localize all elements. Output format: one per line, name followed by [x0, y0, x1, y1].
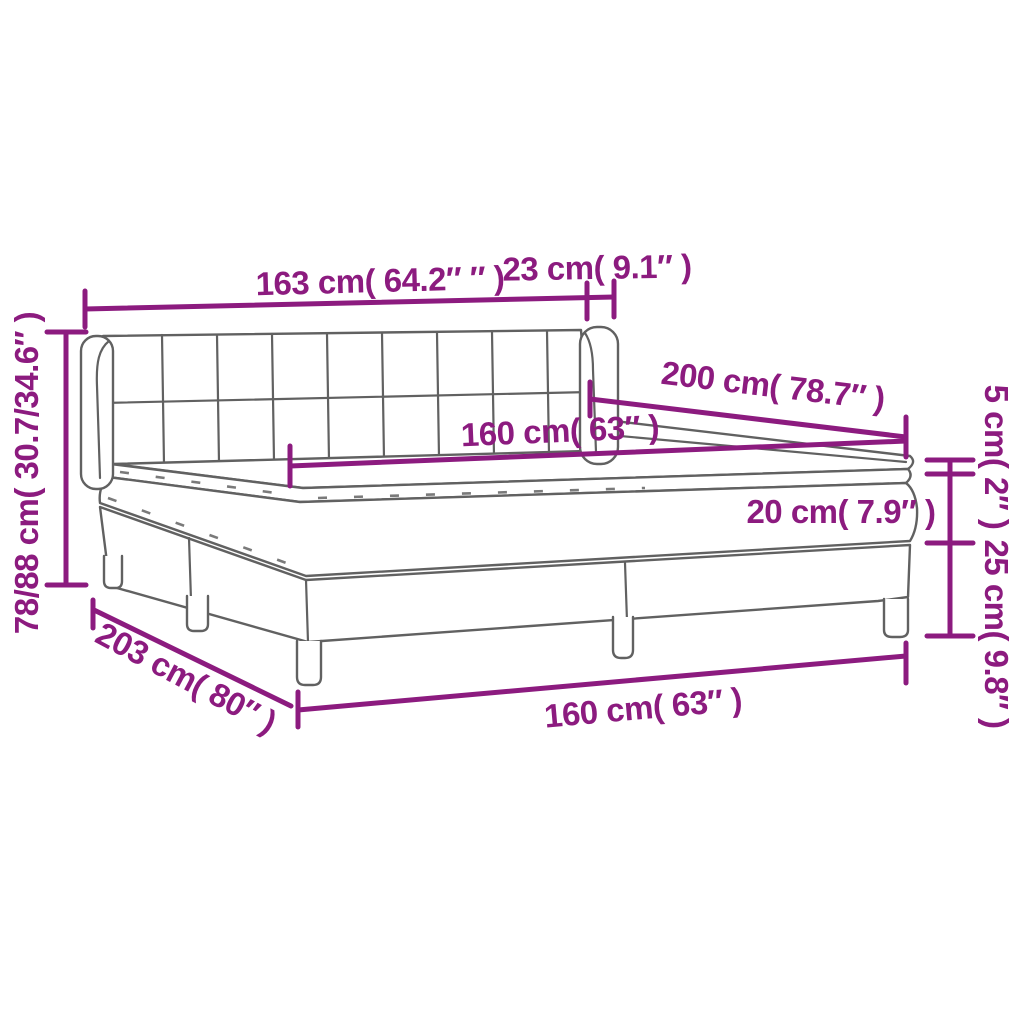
label-mattress-width-bottom: 160 cm( 63″ ) [543, 680, 744, 734]
label-headboard-width: 163 cm( 64.2″ ″ ) [255, 259, 505, 302]
headboard-left-ear [81, 336, 113, 489]
dim-side-heights [927, 460, 973, 636]
label-total-length: 203 cm( 80″ ) [90, 615, 282, 741]
bed-leg [104, 556, 122, 588]
label-topper-height: 5 cm( 2″ ) [978, 385, 1015, 530]
label-base-height: 25 cm( 9.8″ ) [978, 539, 1015, 728]
bed-leg [187, 596, 208, 631]
label-headboard-side: 23 cm( 9.1″ ) [502, 247, 692, 287]
label-mattress-height: 20 cm( 7.9″ ) [746, 493, 935, 530]
label-bed-length: 200 cm( 78.7″ ) [659, 354, 887, 417]
bed-leg [884, 599, 908, 637]
bed-leg [613, 617, 633, 658]
dimension-diagram: 163 cm( 64.2″ ″ ) 23 cm( 9.1″ ) 78/88 cm… [0, 0, 1024, 1024]
bed-leg [297, 641, 321, 685]
label-total-height: 78/88 cm( 30.7/34.6″ ) [8, 312, 45, 634]
bed-diagram-canvas: 163 cm( 64.2″ ″ ) 23 cm( 9.1″ ) 78/88 cm… [0, 0, 1024, 1024]
